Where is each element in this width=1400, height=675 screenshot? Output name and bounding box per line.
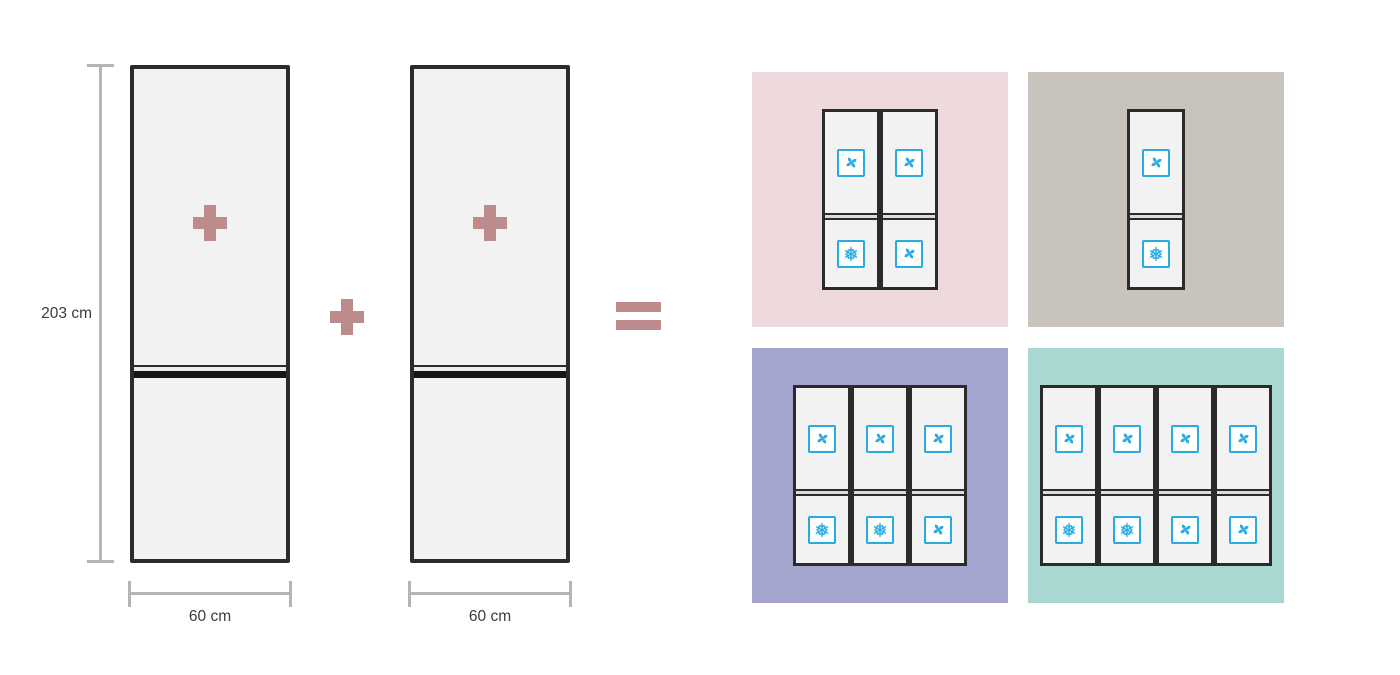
- fridge-unit: [822, 109, 938, 290]
- top-compartment: [854, 388, 906, 491]
- fan-icon: [808, 425, 836, 453]
- top-compartment: [1130, 112, 1182, 215]
- fridge-column: [822, 109, 880, 290]
- fridge-column: [1214, 385, 1272, 566]
- bottom-compartment: [883, 218, 935, 287]
- fridge-1: [130, 65, 290, 563]
- fridge-column: [1098, 385, 1156, 566]
- fan-icon: [924, 425, 952, 453]
- fridge-1-bottom-door: [134, 378, 286, 559]
- fan-icon: [1113, 425, 1141, 453]
- snowflake-icon: [808, 516, 836, 544]
- top-compartment: [796, 388, 848, 491]
- fan-icon: [1142, 149, 1170, 177]
- panel-teal: [1028, 348, 1284, 603]
- equals-bar: [616, 302, 661, 312]
- fan-icon: [866, 425, 894, 453]
- plus-operator-icon: [330, 299, 364, 335]
- top-compartment: [883, 112, 935, 215]
- snowflake-icon: [837, 240, 865, 268]
- bottom-compartment: [854, 494, 906, 563]
- fridge-unit: [793, 385, 967, 566]
- fridge-2-bottom-door: [414, 378, 566, 559]
- dimension-cap: [128, 581, 131, 607]
- fridge-column: [1040, 385, 1098, 566]
- fan-icon: [1055, 425, 1083, 453]
- height-dimension-label: 203 cm: [16, 305, 92, 323]
- snowflake-icon: [1055, 516, 1083, 544]
- bottom-compartment: [796, 494, 848, 563]
- snowflake-icon: [1113, 516, 1141, 544]
- bottom-compartment: [1159, 494, 1211, 563]
- bottom-compartment: [1130, 218, 1182, 287]
- fan-icon: [895, 149, 923, 177]
- fridge-column: [1127, 109, 1185, 290]
- top-compartment: [1217, 388, 1269, 491]
- fan-icon: [1171, 516, 1199, 544]
- fridge-2-width-label: 60 cm: [410, 608, 570, 626]
- plus-icon: [193, 205, 227, 241]
- plus-icon: [473, 205, 507, 241]
- bottom-compartment: [825, 218, 877, 287]
- fridge-divider-handle: [134, 371, 286, 378]
- fridge-column: [851, 385, 909, 566]
- fan-icon: [1229, 425, 1257, 453]
- top-compartment: [825, 112, 877, 215]
- panel-taupe: [1028, 72, 1284, 327]
- fan-icon: [837, 149, 865, 177]
- fridge-column: [880, 109, 938, 290]
- fridge-unit: [1127, 109, 1185, 290]
- fridge-column: [909, 385, 967, 566]
- panel-pink: [752, 72, 1008, 327]
- fan-icon: [924, 516, 952, 544]
- fridge-combination-diagram: 203 cm 60 cm 60 cm: [0, 0, 1400, 675]
- top-compartment: [1101, 388, 1153, 491]
- fridge-1-width-dimension-line: [130, 592, 290, 595]
- top-compartment: [1043, 388, 1095, 491]
- top-compartment: [1159, 388, 1211, 491]
- bottom-compartment: [1101, 494, 1153, 563]
- snowflake-icon: [866, 516, 894, 544]
- panel-purple: [752, 348, 1008, 603]
- fridge-1-width-label: 60 cm: [130, 608, 290, 626]
- dimension-cap: [408, 581, 411, 607]
- dimension-cap: [569, 581, 572, 607]
- bottom-compartment: [912, 494, 964, 563]
- fridge-column: [1156, 385, 1214, 566]
- snowflake-icon: [1142, 240, 1170, 268]
- result-panels: [752, 72, 1284, 603]
- fridge-2: [410, 65, 570, 563]
- dimension-cap: [87, 560, 114, 563]
- fridge-unit: [1040, 385, 1272, 566]
- fridge-divider-handle: [414, 371, 566, 378]
- fan-icon: [895, 240, 923, 268]
- height-dimension-line: [99, 64, 102, 563]
- bottom-compartment: [1043, 494, 1095, 563]
- top-compartment: [912, 388, 964, 491]
- fridge-column: [793, 385, 851, 566]
- dimension-cap: [87, 64, 114, 67]
- equals-operator-icon: [616, 302, 661, 338]
- dimension-cap: [289, 581, 292, 607]
- fridge-2-width-dimension-line: [410, 592, 570, 595]
- equals-bar: [616, 320, 661, 330]
- fan-icon: [1171, 425, 1199, 453]
- bottom-compartment: [1217, 494, 1269, 563]
- fan-icon: [1229, 516, 1257, 544]
